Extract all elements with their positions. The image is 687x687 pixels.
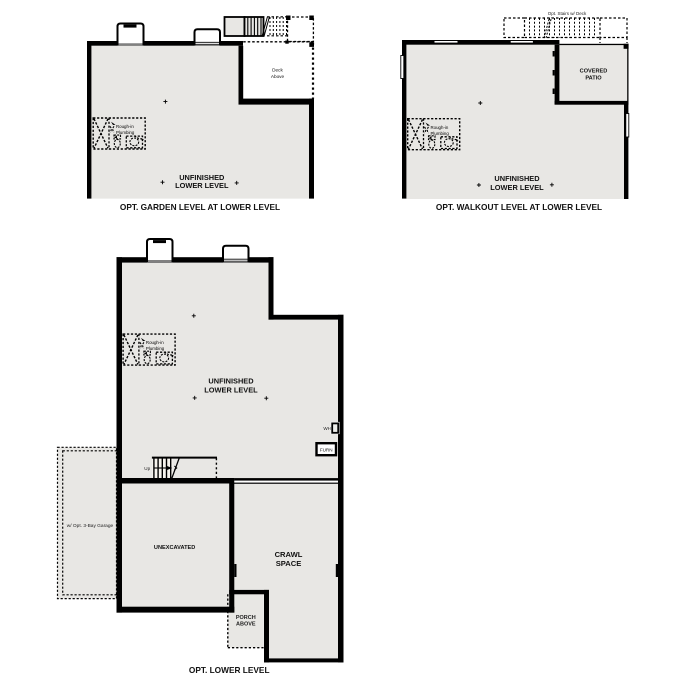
svg-text:Deck: Deck	[272, 68, 283, 73]
svg-text:Up: Up	[144, 466, 150, 471]
svg-text:ABOVE: ABOVE	[236, 622, 256, 628]
svg-text:COVERED: COVERED	[580, 68, 608, 74]
svg-text:PATIO: PATIO	[585, 76, 602, 82]
svg-text:OPT. GARDEN LEVEL AT LOWER LEV: OPT. GARDEN LEVEL AT LOWER LEVEL	[120, 202, 280, 212]
svg-text:WH: WH	[323, 426, 331, 431]
svg-text:UNFINISHED: UNFINISHED	[208, 377, 254, 386]
svg-text:OPT. WALKOUT LEVEL AT LOWER LE: OPT. WALKOUT LEVEL AT LOWER LEVEL	[436, 202, 602, 212]
svg-text:CRAWL: CRAWL	[275, 550, 303, 559]
svg-text:UNEXCAVATED: UNEXCAVATED	[154, 545, 195, 551]
svg-text:LOWER LEVEL: LOWER LEVEL	[175, 181, 229, 190]
svg-text:UNFINISHED: UNFINISHED	[494, 174, 540, 183]
svg-text:LOWER LEVEL: LOWER LEVEL	[204, 386, 258, 395]
svg-text:PORCH: PORCH	[236, 615, 256, 621]
svg-text:Opt. Stairs w/ Deck: Opt. Stairs w/ Deck	[548, 11, 587, 16]
svg-text:SPACE: SPACE	[276, 559, 302, 568]
svg-text:Above: Above	[271, 74, 285, 79]
svg-text:w/ Opt. 3-Bay Garage: w/ Opt. 3-Bay Garage	[67, 523, 114, 529]
svg-text:OPT. LOWER LEVEL: OPT. LOWER LEVEL	[189, 665, 270, 675]
svg-text:LOWER LEVEL: LOWER LEVEL	[490, 183, 544, 192]
svg-text:FURN: FURN	[320, 448, 333, 453]
